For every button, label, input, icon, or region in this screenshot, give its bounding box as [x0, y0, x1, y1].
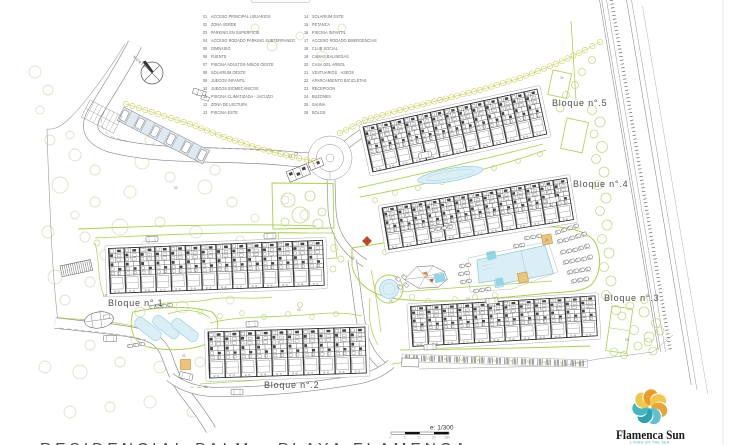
svg-text:15: 15 — [625, 338, 629, 342]
svg-text:04: 04 — [351, 256, 355, 260]
svg-text:Bloque n°.1: Bloque n°.1 — [108, 298, 163, 308]
svg-text:02: 02 — [174, 186, 178, 190]
svg-text:0: 0 — [390, 436, 392, 440]
svg-text:10: 10 — [417, 436, 421, 440]
svg-text:20: 20 — [182, 354, 186, 358]
svg-text:Bloque n°.5: Bloque n°.5 — [552, 98, 607, 108]
svg-text:e: 1/300: e: 1/300 — [430, 425, 454, 432]
svg-text:RESIDENCIAL PALM - PLAYA FLAME: RESIDENCIAL PALM - PLAYA FLAMENCA — [40, 441, 469, 445]
svg-text:Bloque n°.4: Bloque n°.4 — [573, 179, 628, 189]
svg-text:16: 16 — [389, 299, 393, 303]
svg-text:18: 18 — [103, 294, 107, 298]
svg-text:24: 24 — [545, 238, 549, 242]
svg-text:20: 20 — [432, 436, 436, 440]
svg-text:13: 13 — [466, 297, 470, 301]
svg-text:02: 02 — [297, 308, 301, 312]
svg-text:24: 24 — [560, 76, 564, 80]
svg-text:LIVING BY THE SEA: LIVING BY THE SEA — [630, 441, 670, 445]
svg-text:04: 04 — [204, 385, 208, 389]
svg-text:25m: 25m — [444, 436, 451, 440]
svg-text:5: 5 — [404, 436, 406, 440]
svg-text:Bloque n°.3: Bloque n°.3 — [604, 293, 659, 303]
svg-text:Bloque n°.2: Bloque n°.2 — [264, 380, 319, 390]
